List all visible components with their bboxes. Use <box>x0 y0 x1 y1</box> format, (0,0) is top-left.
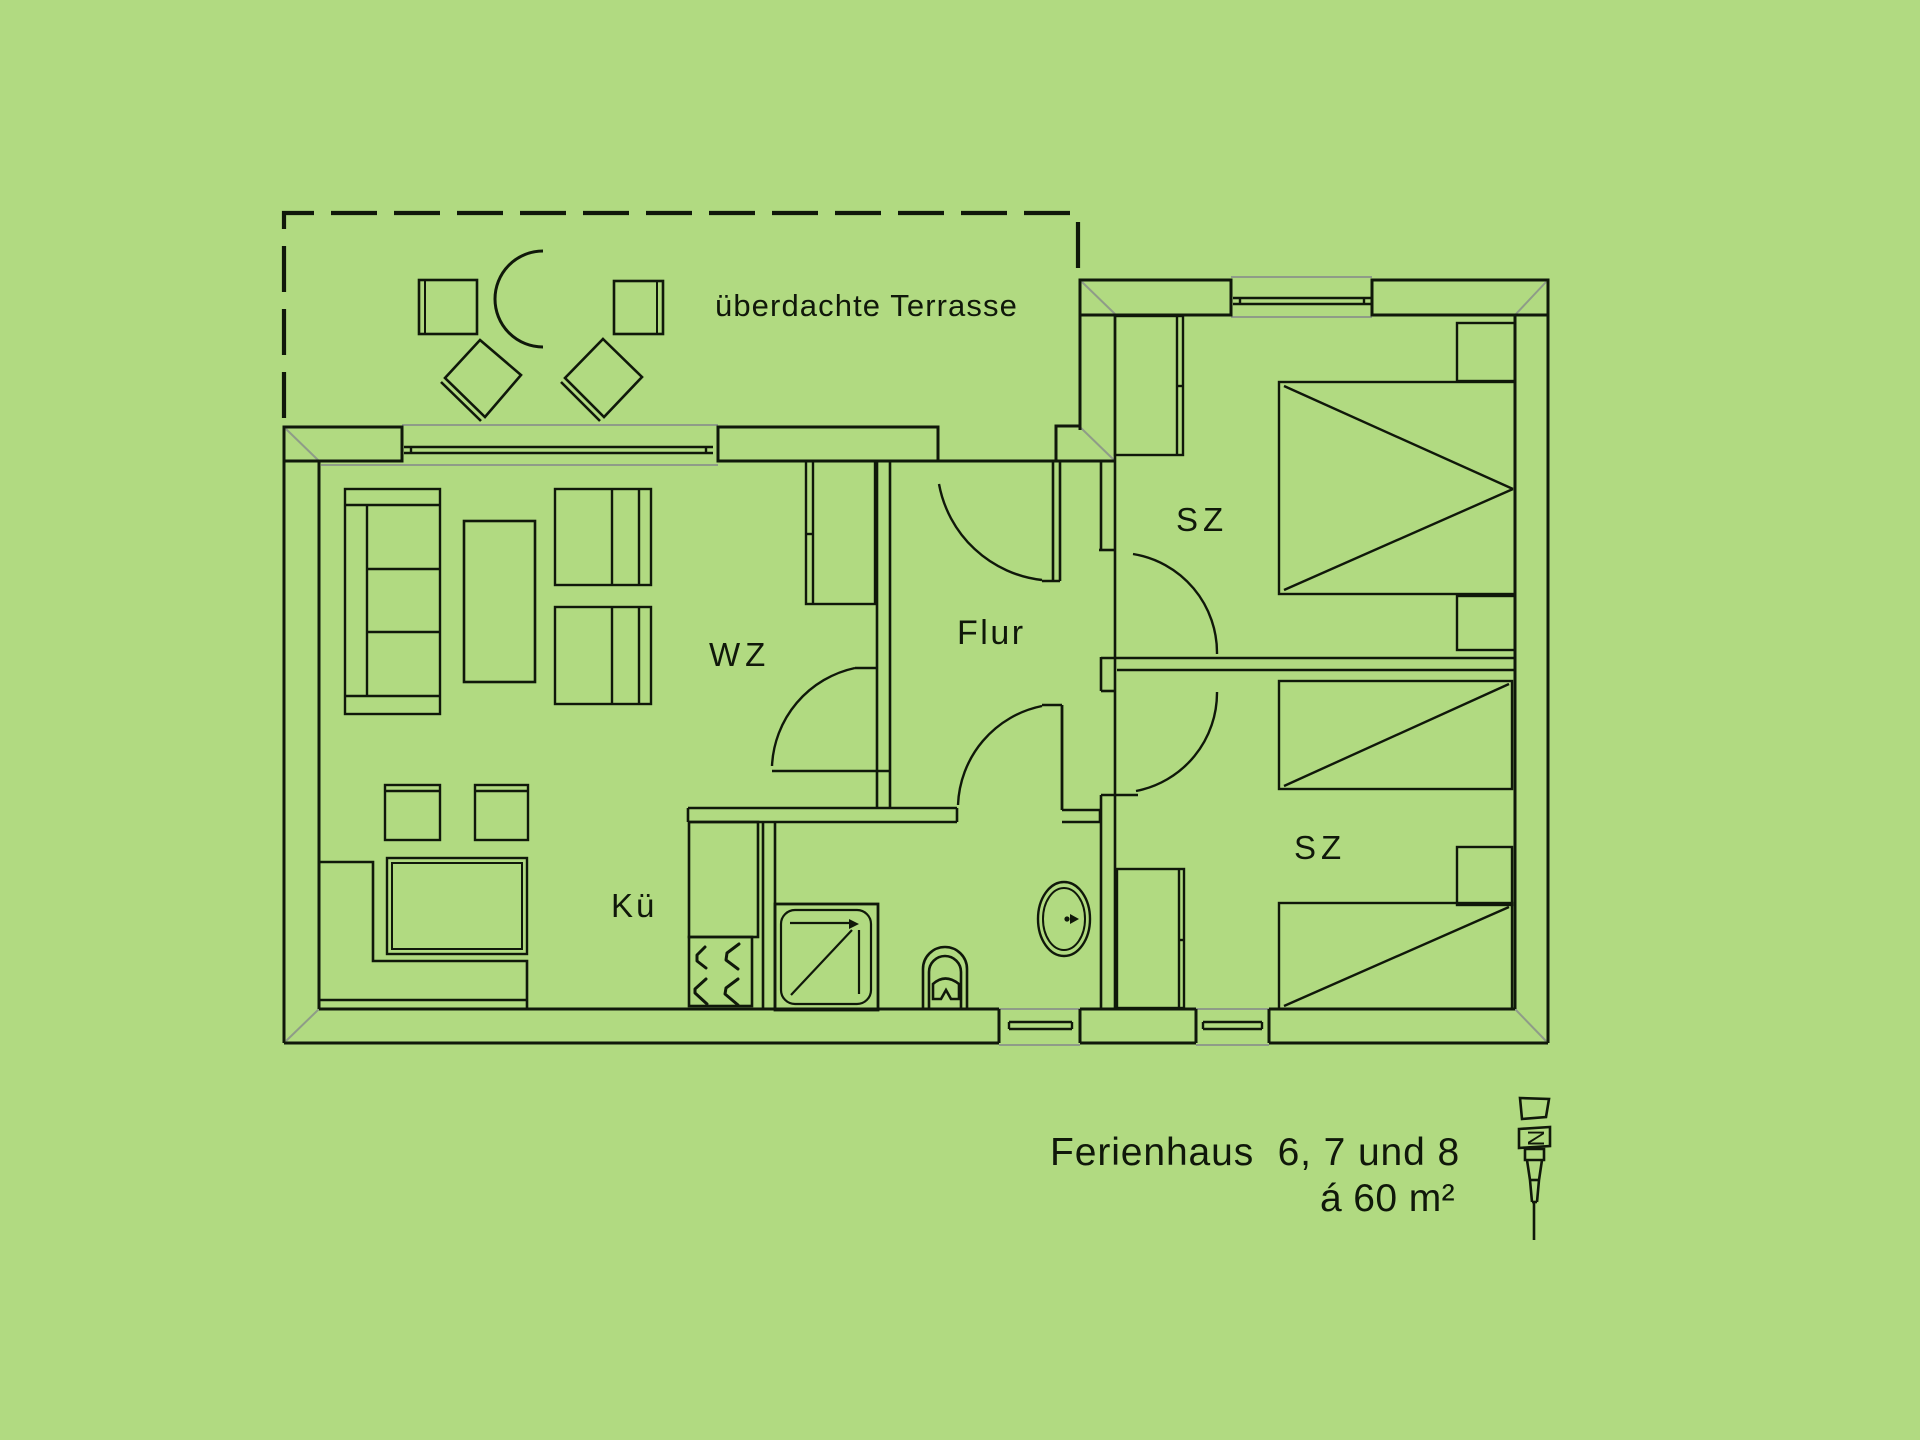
svg-text:Kü: Kü <box>611 887 657 924</box>
svg-text:Flur: Flur <box>957 614 1026 652</box>
svg-text:Ferienhaus 6, 7 und 8: Ferienhaus 6, 7 und 8 <box>1050 1131 1460 1174</box>
svg-text:SZ: SZ <box>1176 501 1228 538</box>
svg-text:WZ: WZ <box>709 636 770 673</box>
svg-text:überdachte Terrasse: überdachte Terrasse <box>715 288 1018 323</box>
svg-text:N: N <box>1523 1130 1549 1147</box>
svg-text:SZ: SZ <box>1294 829 1346 866</box>
svg-text:á 60 m²: á 60 m² <box>1320 1177 1455 1220</box>
